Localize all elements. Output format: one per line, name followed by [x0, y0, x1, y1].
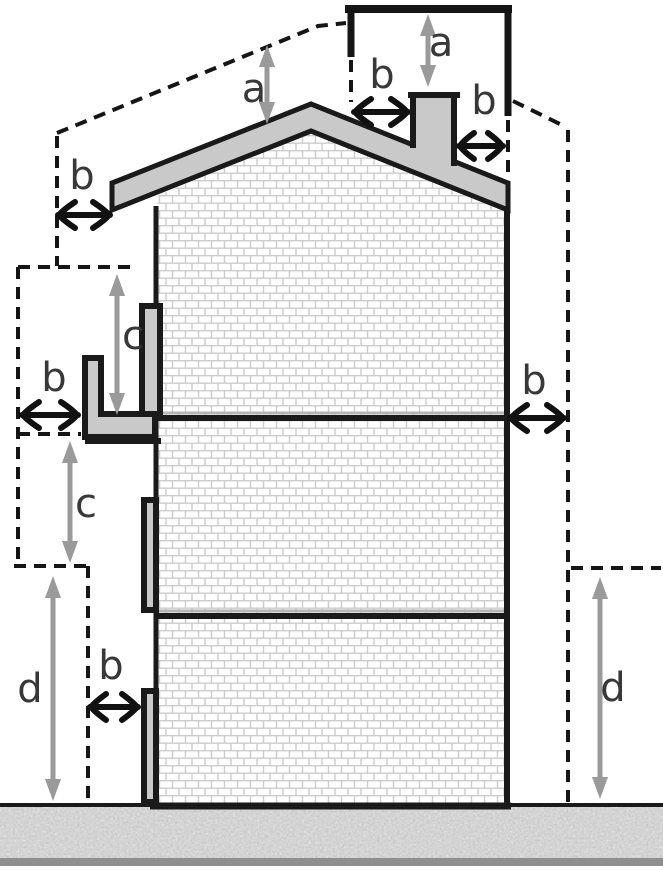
- label-c-window-above: c: [122, 313, 144, 359]
- label-a-ridge: a: [242, 66, 267, 112]
- label-d-ground-right: d: [600, 665, 625, 711]
- label-a-chimney: a: [429, 20, 454, 66]
- brick-wall: [157, 131, 506, 804]
- ground-speckle: [0, 806, 663, 858]
- label-c-balcony-below: c: [75, 481, 97, 527]
- label-b-window-bottom: b: [98, 643, 123, 689]
- clearance-diagram: a a b b b b b b c c d d: [0, 0, 663, 876]
- label-b-chimney-right: b: [471, 78, 496, 124]
- window-upper: [142, 306, 160, 418]
- clearance-diagram-page: a a b b b b b b c c d d: [0, 0, 663, 876]
- label-b-balcony: b: [41, 355, 66, 401]
- ground-base-bar: [0, 858, 663, 866]
- building: [150, 131, 511, 806]
- label-b-facade-right: b: [521, 358, 546, 404]
- label-b-eave-left: b: [69, 153, 94, 199]
- ground: [0, 805, 663, 866]
- window-middle: [144, 500, 156, 610]
- window-lower: [144, 691, 156, 802]
- label-d-ground-left: d: [17, 666, 42, 712]
- label-b-chimney-left: b: [369, 52, 394, 98]
